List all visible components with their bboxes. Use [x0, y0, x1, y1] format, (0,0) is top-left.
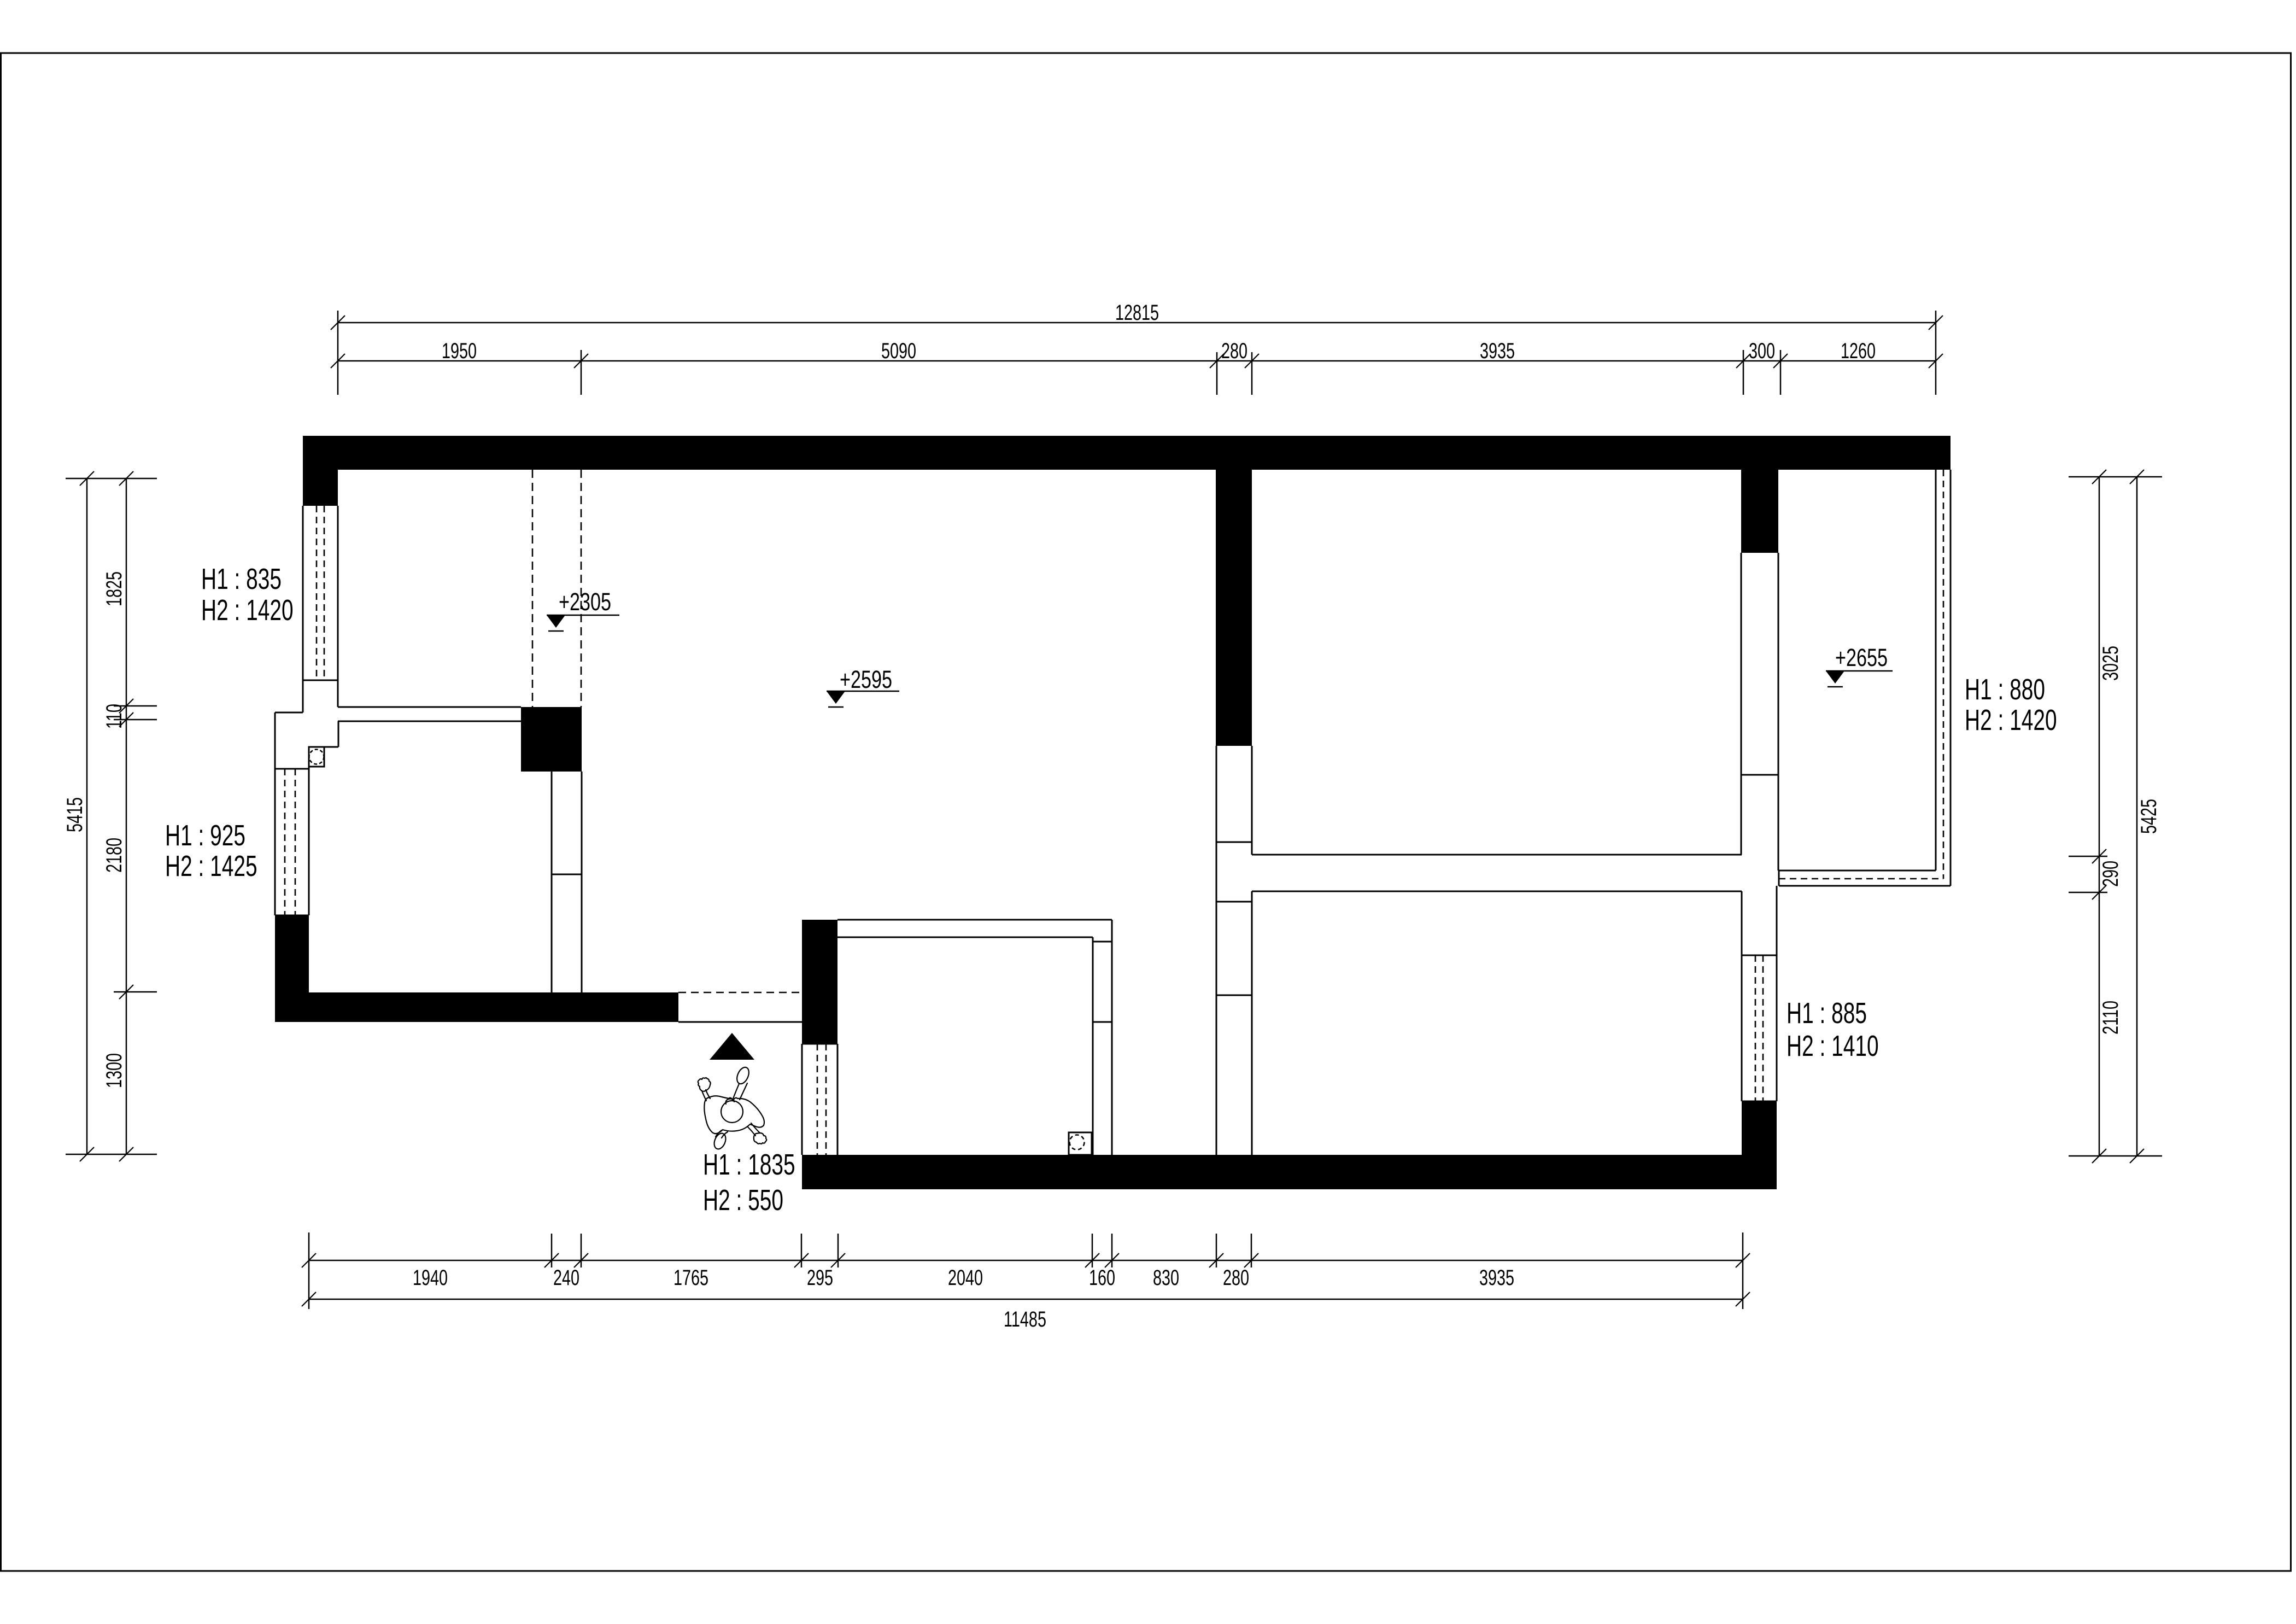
svg-text:2180: 2180 [102, 838, 126, 873]
svg-text:2040: 2040 [948, 1265, 983, 1290]
svg-text:11485: 11485 [1004, 1307, 1046, 1331]
svg-text:+2595: +2595 [840, 667, 892, 694]
svg-text:5090: 5090 [881, 338, 916, 363]
svg-text:2110: 2110 [2098, 1001, 2123, 1035]
svg-text:3935: 3935 [1479, 1265, 1514, 1290]
svg-text:1940: 1940 [413, 1265, 448, 1290]
svg-text:295: 295 [807, 1265, 833, 1290]
svg-text:5415: 5415 [62, 797, 87, 832]
svg-text:H2 : 1420: H2 : 1420 [1965, 703, 2057, 737]
svg-text:160: 160 [1089, 1265, 1115, 1290]
svg-text:H2 : 1410: H2 : 1410 [1787, 1029, 1879, 1062]
svg-text:3935: 3935 [1480, 338, 1515, 363]
svg-text:+2305: +2305 [559, 589, 611, 616]
svg-text:280: 280 [1221, 338, 1247, 363]
svg-text:1260: 1260 [1841, 338, 1876, 363]
svg-text:110: 110 [102, 704, 126, 729]
svg-text:12815: 12815 [1115, 300, 1159, 325]
svg-text:1300: 1300 [102, 1053, 126, 1088]
svg-text:1765: 1765 [673, 1265, 708, 1290]
svg-text:3025: 3025 [2098, 646, 2123, 681]
svg-text:300: 300 [1749, 338, 1775, 363]
svg-text:280: 280 [1223, 1265, 1249, 1290]
svg-text:H1 : 835: H1 : 835 [201, 562, 282, 595]
svg-text:H1 : 880: H1 : 880 [1965, 673, 2045, 706]
svg-text:H1 : 885: H1 : 885 [1787, 996, 1867, 1030]
svg-text:240: 240 [553, 1265, 579, 1290]
svg-text:5425: 5425 [2136, 799, 2161, 834]
svg-text:1825: 1825 [102, 571, 126, 606]
svg-text:H1 : 1835: H1 : 1835 [703, 1148, 795, 1181]
svg-text:1950: 1950 [442, 338, 477, 363]
svg-text:290: 290 [2098, 861, 2123, 887]
svg-text:H2 : 1420: H2 : 1420 [201, 593, 294, 627]
svg-text:H2 : 1425: H2 : 1425 [165, 849, 257, 883]
svg-text:H2 : 550: H2 : 550 [703, 1183, 783, 1217]
svg-text:830: 830 [1153, 1265, 1179, 1290]
svg-text:+2655: +2655 [1835, 645, 1888, 672]
svg-text:H1 : 925: H1 : 925 [165, 819, 245, 852]
